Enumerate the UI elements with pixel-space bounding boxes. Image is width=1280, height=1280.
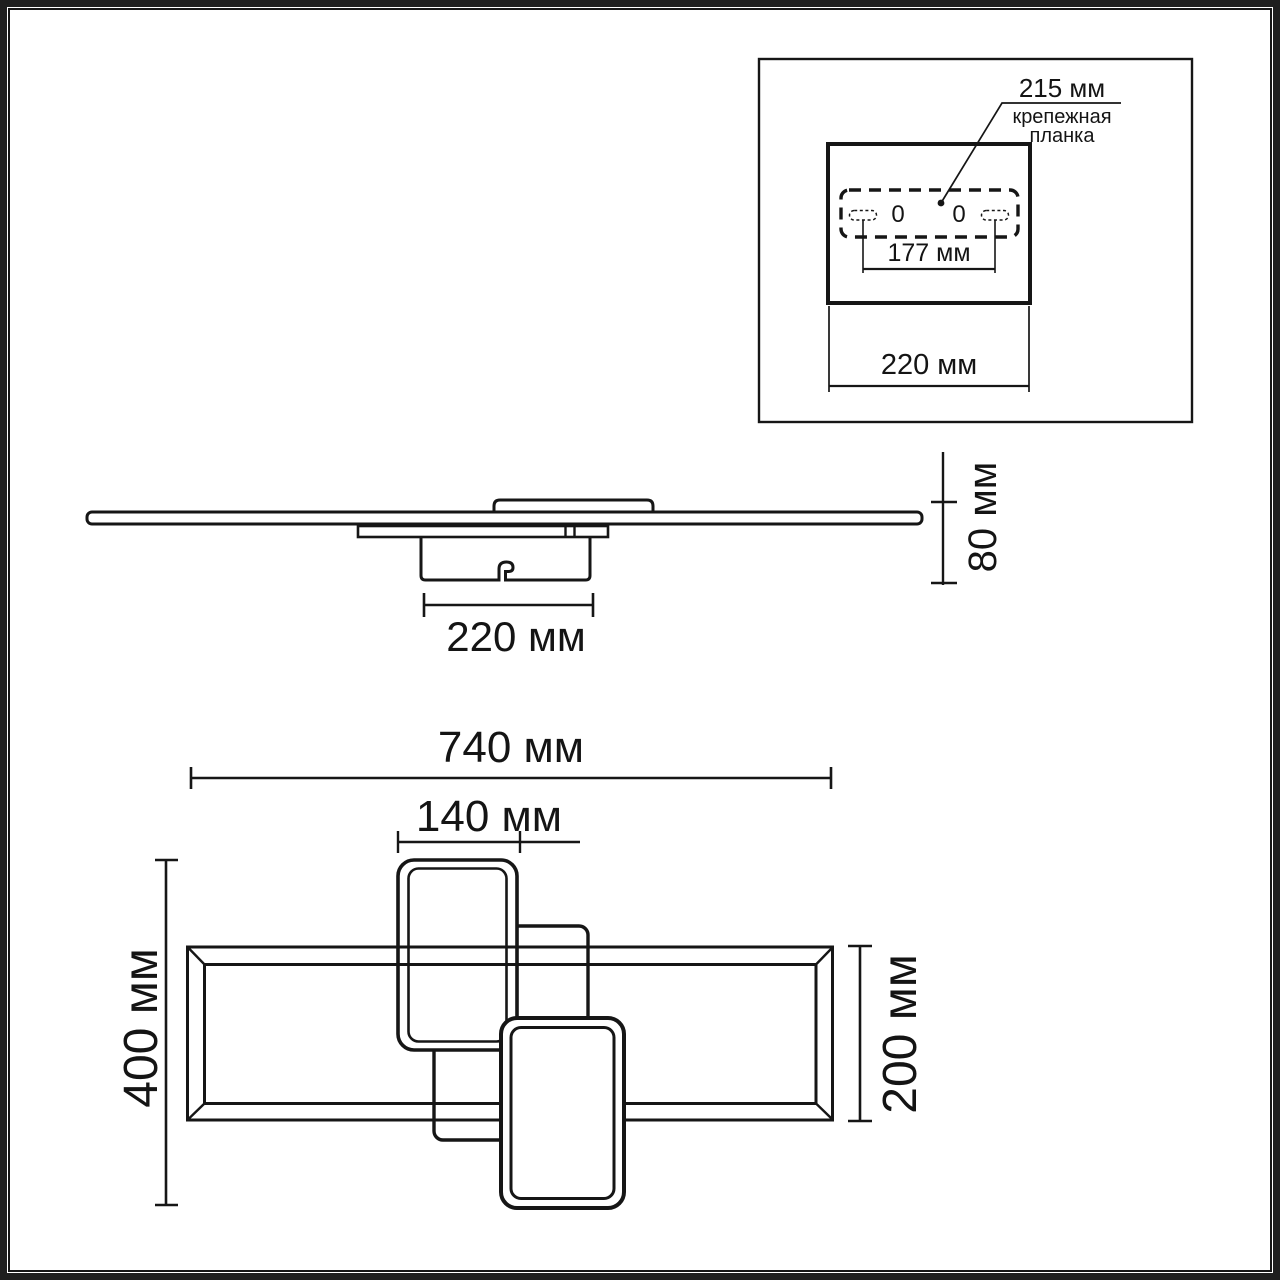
dim-slot-spacing: 177 мм xyxy=(863,220,995,273)
drawing-canvas: 0 0 215 мм крепежная планка 177 мм 220 м… xyxy=(0,0,1280,1280)
dim-slot-spacing-label: 177 мм xyxy=(887,239,970,267)
screw-slot-left xyxy=(850,211,877,221)
side-main-panel xyxy=(87,512,922,524)
screw-slot-right xyxy=(982,211,1009,221)
top-view: 740 мм 140 мм 400 мм 200 мм xyxy=(115,723,927,1208)
dim-frame-depth: 200 мм xyxy=(848,946,927,1121)
dim-frame-depth-label: 200 мм xyxy=(874,954,927,1113)
hole-mark-left: 0 xyxy=(891,201,904,228)
side-view: 220 мм 80 мм xyxy=(87,452,1005,660)
plate-length-label: 215 мм xyxy=(1019,73,1105,103)
mounting-plate-dashed-outline xyxy=(841,190,1018,237)
plate-caption-line2: планка xyxy=(1030,125,1096,147)
dim-small-frame-width: 140 мм xyxy=(398,792,580,853)
side-mounting-strip xyxy=(358,526,608,537)
dim-side-canopy-width-label: 220 мм xyxy=(446,613,586,660)
dim-side-canopy-width: 220 мм xyxy=(424,593,593,660)
top-small-frame-lower xyxy=(501,1018,624,1208)
dim-inset-box-width-label: 220 мм xyxy=(881,349,977,381)
top-small-frame-upper xyxy=(398,860,517,1050)
junction-box-outline xyxy=(828,144,1030,303)
side-canopy-box-with-hook xyxy=(421,537,590,580)
dim-side-height-label: 80 мм xyxy=(961,462,1005,573)
technical-drawing-page: 0 0 215 мм крепежная планка 177 мм 220 м… xyxy=(0,0,1280,1280)
dim-small-frame-width-label: 140 мм xyxy=(416,792,562,841)
dim-overall-width-label: 740 мм xyxy=(438,723,584,772)
dim-overall-depth-label: 400 мм xyxy=(115,948,168,1107)
mounting-detail-inset: 0 0 215 мм крепежная планка 177 мм 220 м… xyxy=(759,59,1192,422)
dim-overall-width: 740 мм xyxy=(191,723,831,789)
dim-side-height: 80 мм xyxy=(931,452,1005,585)
dim-overall-depth: 400 мм xyxy=(115,860,178,1205)
hole-mark-right: 0 xyxy=(952,201,965,228)
dim-inset-box-width: 220 мм xyxy=(829,306,1029,392)
